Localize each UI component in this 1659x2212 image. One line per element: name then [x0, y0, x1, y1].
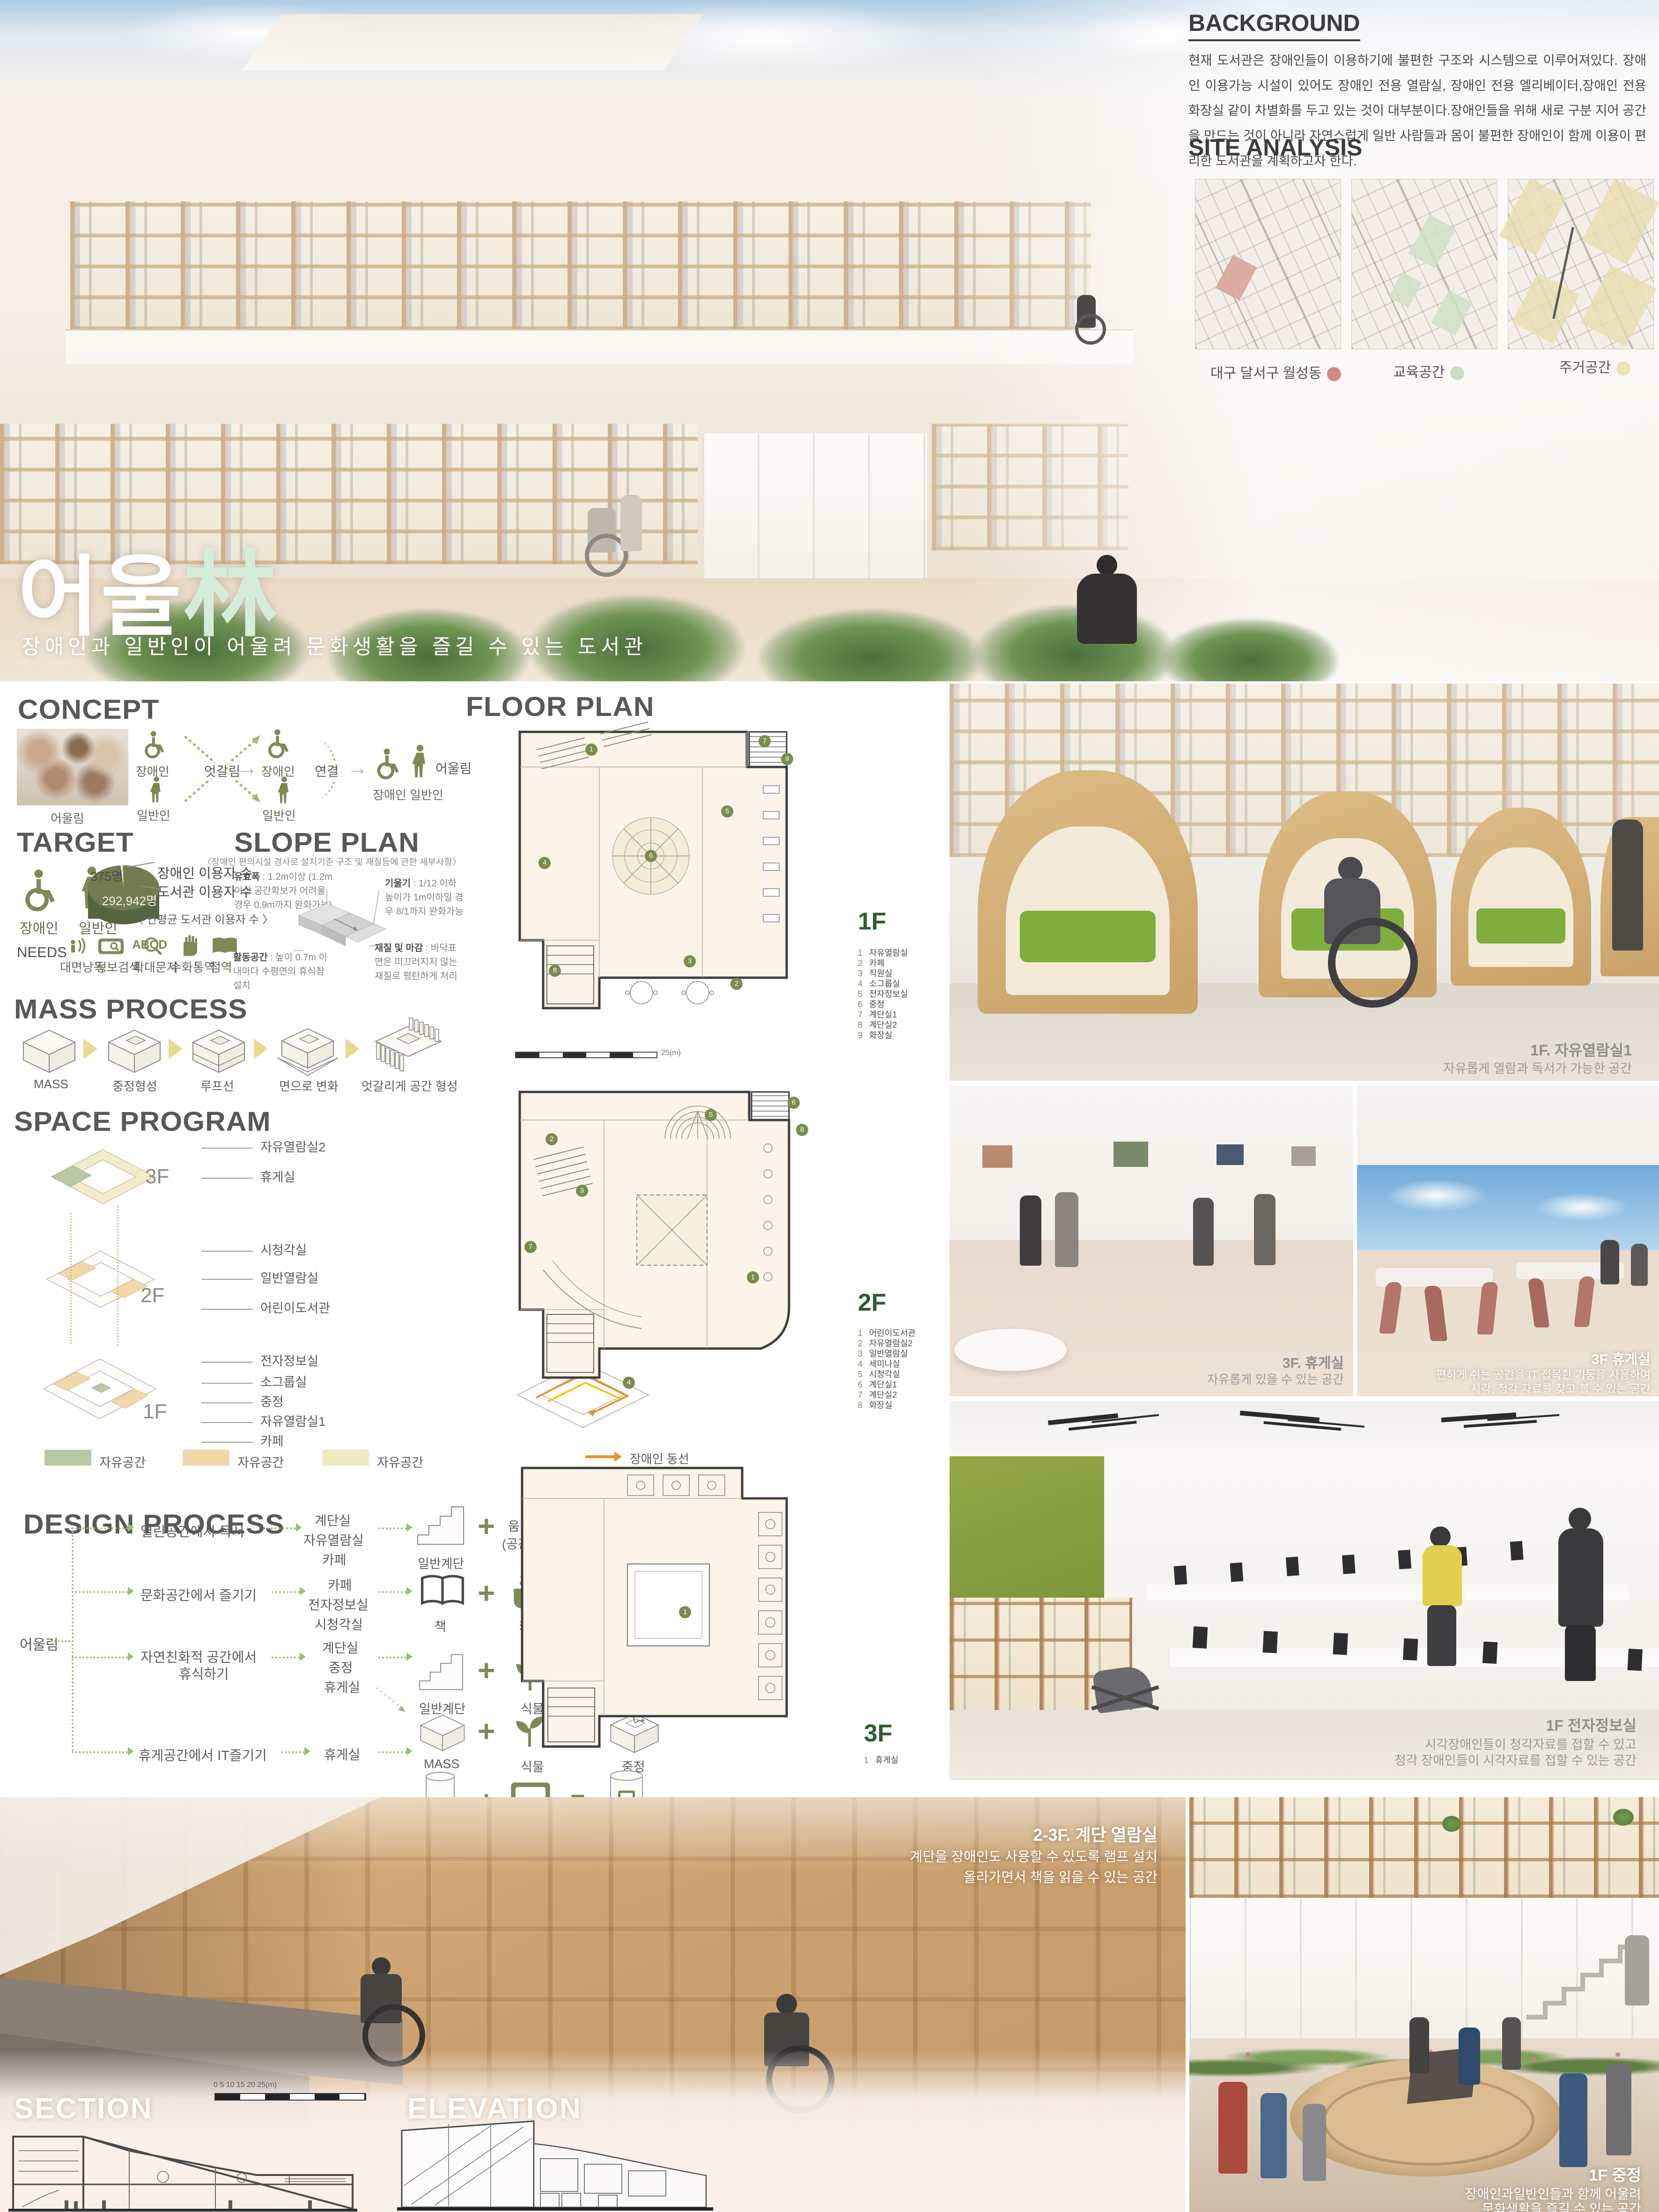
room-number-badge: 4: [623, 1377, 635, 1389]
design-room-3a: 계단실: [322, 1638, 358, 1657]
room-number-badge: 2: [730, 978, 743, 990]
mass-step-label-1: MASS: [34, 1077, 68, 1091]
site-map-label-1: 대구 달서구 월성동: [1210, 361, 1341, 382]
wheelchair-icon: [264, 728, 295, 759]
slope-note-material: 재질 및 마감 : 바닥표면은 미끄러지지 않는 재질로 평탄하게 처리: [375, 941, 464, 983]
legend-item: 3직원실: [858, 968, 892, 979]
mass-process-heading: MASS PROCESS: [14, 994, 248, 1025]
design-a-label-1: 일반계단: [418, 1554, 464, 1572]
concept-photo-caption: 어울림: [51, 809, 84, 826]
figure-silhouette: [1631, 1244, 1648, 1286]
render-caption-line: 계단을 장애인도 사용할 수 있도록 램프 설치: [910, 1846, 1158, 1865]
legend-item: 3일반열람실: [858, 1349, 908, 1359]
render-digital-room: 1F 전자정보실 시각장애인들이 청각자료를 접할 수 있고 청각 장애인들이 …: [950, 1401, 1659, 1780]
design-a-label-2: 책: [435, 1616, 446, 1635]
book-icon: [419, 1573, 466, 1608]
design-room-1a: 계단실: [315, 1511, 351, 1529]
design-root-label: 어울림: [20, 1633, 59, 1654]
figure-silhouette: [1020, 1195, 1041, 1266]
reading-aloud-icon: [66, 935, 89, 957]
stairs-icon: [415, 1504, 466, 1547]
legend-dot-green: [1450, 366, 1464, 380]
arrow-icon: [254, 1039, 278, 1059]
room-number-badge: 1: [679, 1606, 691, 1618]
figure-silhouette: [1261, 2093, 1287, 2178]
target-disabled-label: 장애인: [20, 917, 59, 937]
figure-on-stage: [1409, 2017, 1429, 2073]
butterfly-chair: [1090, 1663, 1160, 1724]
axon-2f-label: 2F: [140, 1284, 164, 1307]
room-number-badge: 2: [546, 1133, 558, 1145]
floor-plan-2f: [487, 1073, 843, 1410]
space-label-1f-1: 전자정보실: [201, 1351, 318, 1369]
legend-swatch-green: [44, 1450, 91, 1466]
space-label-3f-1: 자유열람실2: [201, 1137, 325, 1155]
render-caption-line: 시각, 청각 자료를 찾고 볼 수 있는 공간: [1470, 1379, 1651, 1396]
figure-silhouette: [1193, 1198, 1214, 1266]
legend-item: 2카페: [858, 958, 885, 968]
section-label: SECTION: [14, 2092, 153, 2125]
figure-on-stage: [1459, 2028, 1480, 2085]
slope-note-gradient: 기울기 : 1/12 이하 높이가 1m이하일 경우 8/1까지 완화가능: [385, 877, 465, 919]
tablet-stand: [1174, 1565, 1187, 1585]
render-caption-title: 1F 전자정보실: [1546, 1714, 1637, 1735]
needs-label: NEEDS: [17, 944, 67, 961]
render-caption-line: 올라가면서 책을 읽을 수 있는 공간: [964, 1866, 1158, 1886]
legend-item: 5전자정보실: [858, 989, 908, 999]
figure-silhouette: [1625, 1935, 1649, 2006]
legend-item: 1어린이도서관: [858, 1328, 915, 1338]
design-a-label-4: MASS: [424, 1757, 460, 1771]
mass-step-label-3: 루프선: [200, 1077, 234, 1094]
floor-label-2f: 2F: [858, 1289, 886, 1317]
legend-item: 5시청각실: [858, 1369, 900, 1379]
legend-dot-yellow: [1616, 361, 1630, 376]
figure-silhouette: [1606, 2064, 1631, 2155]
legend-label-1: 자유공간: [99, 1453, 146, 1471]
mass-cube-icon: [417, 1710, 468, 1754]
design-room-2a: 카페: [328, 1575, 352, 1594]
figure-on-stage: [1502, 2017, 1521, 2070]
person-icon: [274, 776, 294, 806]
section-drawing: [8, 2132, 357, 2212]
room-number-badge: 8: [549, 965, 561, 977]
legend-item: 4소그룹실: [858, 979, 900, 989]
legend-item: 1자유열람실: [858, 948, 908, 958]
figure-silhouette: [1303, 2104, 1326, 2181]
design-room-5a: 휴게실: [324, 1745, 360, 1763]
render-courtyard: 1F 중정 장애인과일반인들과 함께 어울려 문화생활을 즐길 수 있는 공간: [1189, 1797, 1659, 2212]
room-number-badge: 5: [705, 1109, 717, 1121]
figure-silhouette: [1559, 2073, 1587, 2167]
design-goal-5: 휴게공간에서 IT즐기기: [139, 1745, 267, 1764]
room-number-badge: 3: [684, 955, 696, 967]
design-room-3c: 휴게실: [324, 1677, 360, 1696]
plant-dot: [1442, 1816, 1461, 1832]
needs-item-5: 점역: [210, 958, 232, 975]
page-subtitle: 장애인과 일반인이 어울려 문화생활을 즐길 수 있는 도서관: [22, 630, 647, 660]
drawing-scale-bar: [214, 2093, 366, 2101]
legend-item: 6중정: [858, 999, 885, 1010]
flower-dots: [1246, 2052, 1250, 2057]
display-table: [1146, 1585, 1629, 1600]
stairs-icon: [417, 1652, 465, 1692]
space-label-2f-2: 일반열람실: [201, 1268, 318, 1286]
axon-3f-label: 3F: [145, 1165, 169, 1188]
reading-pod: [1451, 808, 1591, 986]
legend-item: 7계단실1: [858, 1010, 897, 1020]
space-program-heading: SPACE PROGRAM: [14, 1106, 271, 1137]
arrow-right-icon: →: [347, 755, 368, 780]
mass-step-label-5: 엇갈리게 공간 형성: [361, 1077, 458, 1094]
legend-label-3: 자유공간: [377, 1453, 423, 1471]
mass-step-cube-5: [366, 1017, 450, 1080]
mass-step-cube-4: [275, 1023, 341, 1077]
plan-scale-label: 25(m): [661, 1049, 681, 1057]
legend-item: 8계단실2: [858, 1020, 897, 1030]
tablet-stand: [1193, 1626, 1208, 1649]
arrow-right-icon: →: [236, 755, 258, 780]
room-number-badge: 5: [721, 805, 733, 818]
mass-step-cube-2: [104, 1025, 165, 1076]
legend-item: 4세미나실: [858, 1359, 900, 1369]
info-search-icon: [97, 936, 125, 956]
room-number-badge: 1: [747, 1271, 759, 1283]
site-map-location: [1195, 179, 1341, 349]
design-goal-1: 열린공간에서 독서: [140, 1521, 244, 1541]
wheelchair-icon: [140, 730, 170, 759]
figure-silhouette: [1600, 1240, 1619, 1284]
elevation-drawing: [397, 2116, 713, 2212]
design-goal-2: 문화공간에서 즐기기: [140, 1585, 257, 1604]
concept-heading: CONCEPT: [18, 694, 159, 725]
mass-step-cube-1: [19, 1025, 80, 1076]
design-room-1c: 카페: [322, 1550, 347, 1569]
design-goal-3b: 휴식하기: [179, 1663, 229, 1683]
room-number-badge: 8: [796, 1124, 808, 1136]
space-label-3f-2: 휴게실: [201, 1167, 295, 1185]
pie-big-value: 292,942명: [102, 892, 157, 909]
slope-ramp-diagram: [294, 890, 388, 960]
room-number-badge: 6: [788, 1097, 800, 1109]
render-caption-line: 문화생활을 즐길 수 있는 공간: [1482, 2199, 1641, 2212]
mass-step-label-4: 면으로 변화: [279, 1077, 339, 1094]
legend-swatch-tan: [183, 1450, 229, 1466]
standing-figure: [1612, 819, 1643, 951]
person-icon: [147, 776, 166, 805]
room-number-badge: 4: [538, 857, 551, 869]
slope-plan-heading: SLOPE PLAN: [234, 827, 420, 858]
space-label-1f-2: 소그룹실: [201, 1372, 307, 1390]
floor-label-1f: 1F: [858, 907, 886, 936]
render-lounge-b: 3F 휴게실 편하게 쉬는 공간을 IT 접목한 기둥을 사용하여 시각, 청각…: [1357, 1085, 1659, 1396]
axon-floor-3f: [44, 1135, 162, 1215]
drawing-scale-ticks: 0 5 10 15 20 25(m): [214, 2081, 277, 2089]
space-label-2f-3: 어린이도서관: [201, 1298, 330, 1316]
space-label-1f-4: 자유열람실1: [201, 1411, 325, 1430]
background-heading: BACKGROUND: [1188, 9, 1360, 41]
site-map-label-2: 교육공간: [1393, 361, 1464, 381]
design-room-3b: 중정: [329, 1658, 353, 1676]
axon-1f-label: 1F: [143, 1400, 167, 1423]
render-caption-title: 2-3F. 계단 열람실: [1033, 1821, 1158, 1846]
render-caption-line: 자유롭게 열람과 독서가 가능한 공간: [1443, 1058, 1632, 1077]
room-number-badge: 1: [585, 744, 597, 756]
design-room-2b: 전자정보실: [308, 1595, 369, 1614]
mass-step-label-2: 중정형성: [112, 1077, 157, 1094]
large-text-icon: ABCD: [132, 936, 170, 957]
legend-dot-red: [1327, 367, 1341, 381]
legend-item: 8화장실: [858, 1400, 892, 1410]
figure-silhouette: [1055, 1192, 1078, 1267]
site-map-residential: [1508, 179, 1654, 349]
render-stair-reading: 2-3F. 계단 열람실 계단을 장애인도 사용할 수 있도록 램프 설치 올라…: [0, 1797, 1186, 2212]
site-map-education: [1351, 179, 1497, 349]
axon-floor-2f: [40, 1236, 162, 1320]
room-number-badge: 7: [524, 1241, 537, 1253]
render-caption-title: 1F 중정: [1589, 2162, 1641, 2185]
reading-pod: [978, 770, 1198, 1014]
poster: 어울林 장애인과 일반인이 어울려 문화생활을 즐길 수 있는 도서관 BACK…: [0, 0, 1659, 2212]
legend-item: 9화장실: [858, 1030, 892, 1040]
pie-caption: 〈 연평균 도서관 이용자 수 〉: [132, 910, 273, 927]
legend-item: 2자유열람실2: [858, 1338, 913, 1349]
render-caption-line: 청각 장애인들이 시각자료를 접할 수 있는 공간: [1394, 1750, 1637, 1769]
legend-item: 7계단실2: [858, 1390, 897, 1400]
person-icon: [408, 745, 432, 781]
slope-plan-subtitle: 〈장애인 편의시설 경사로 설치기준 구조 및 재질등에 관한 세부사항〉: [203, 855, 461, 868]
target-heading: TARGET: [17, 827, 134, 858]
room-number-badge: 3: [576, 1185, 588, 1197]
design-room-2c: 시청각실: [315, 1615, 363, 1633]
wheelchair-icon: [372, 747, 406, 781]
room-number-badge: 7: [759, 735, 771, 747]
concept-photo: [17, 729, 128, 805]
mass-step-cube-3: [188, 1025, 249, 1076]
room-number-badge: 9: [781, 753, 793, 765]
space-label-1f-5: 카페: [201, 1431, 284, 1449]
plant-dot: [1613, 1809, 1634, 1826]
room-number-badge: 6: [645, 850, 657, 862]
concept-connect-label: 연결: [313, 761, 341, 780]
design-room-1b: 자유열람실: [303, 1530, 364, 1549]
render-caption-line: 자유롭게 있을 수 있는 공간: [1207, 1370, 1344, 1387]
render-lounge-a: 3F. 휴게실 자유롭게 있을 수 있는 공간: [950, 1085, 1353, 1396]
needs-item-4: 수화통역: [170, 958, 215, 975]
concept-together-label: 어울림: [435, 759, 472, 777]
floor-plan-3f: [487, 1447, 843, 1784]
sign-language-icon: [179, 934, 200, 958]
figure-silhouette: [1218, 2082, 1247, 2174]
render-caption-title: 1F. 자유열람실1: [1530, 1039, 1632, 1060]
legend-swatch-yellow: [322, 1450, 369, 1466]
courtyard-bookshelf-wall: [1189, 1797, 1659, 1898]
figure-silhouette: [1254, 1194, 1276, 1265]
circular-stage: [1290, 2059, 1562, 2176]
concept-pair-label: 장애인 일반인: [373, 786, 443, 803]
space-label-2f-1: 시청각실: [201, 1240, 307, 1258]
legend-item: 1휴게실: [864, 1755, 899, 1765]
legend-label-2: 자유공간: [237, 1453, 284, 1471]
wheelchair-icon: [19, 867, 65, 913]
concept-general-label: 일반인: [137, 806, 170, 824]
legend-item: 6계단실1: [858, 1379, 897, 1390]
space-label-1f-3: 중정: [201, 1392, 284, 1410]
site-map-label-3: 주거공간: [1559, 356, 1630, 376]
pie-small-value: 375명: [90, 866, 123, 885]
site-analysis-heading: SITE ANALYSIS: [1188, 134, 1362, 161]
render-reading-room: 1F. 자유열람실1 자유롭게 열람과 독서가 가능한 공간: [950, 684, 1659, 1081]
concept-general2-label: 일반인: [262, 806, 296, 824]
plan-scale-bar: [515, 1052, 657, 1058]
render-caption-title: 3F. 휴게실: [1283, 1351, 1344, 1372]
floor-label-3f: 3F: [864, 1719, 892, 1747]
